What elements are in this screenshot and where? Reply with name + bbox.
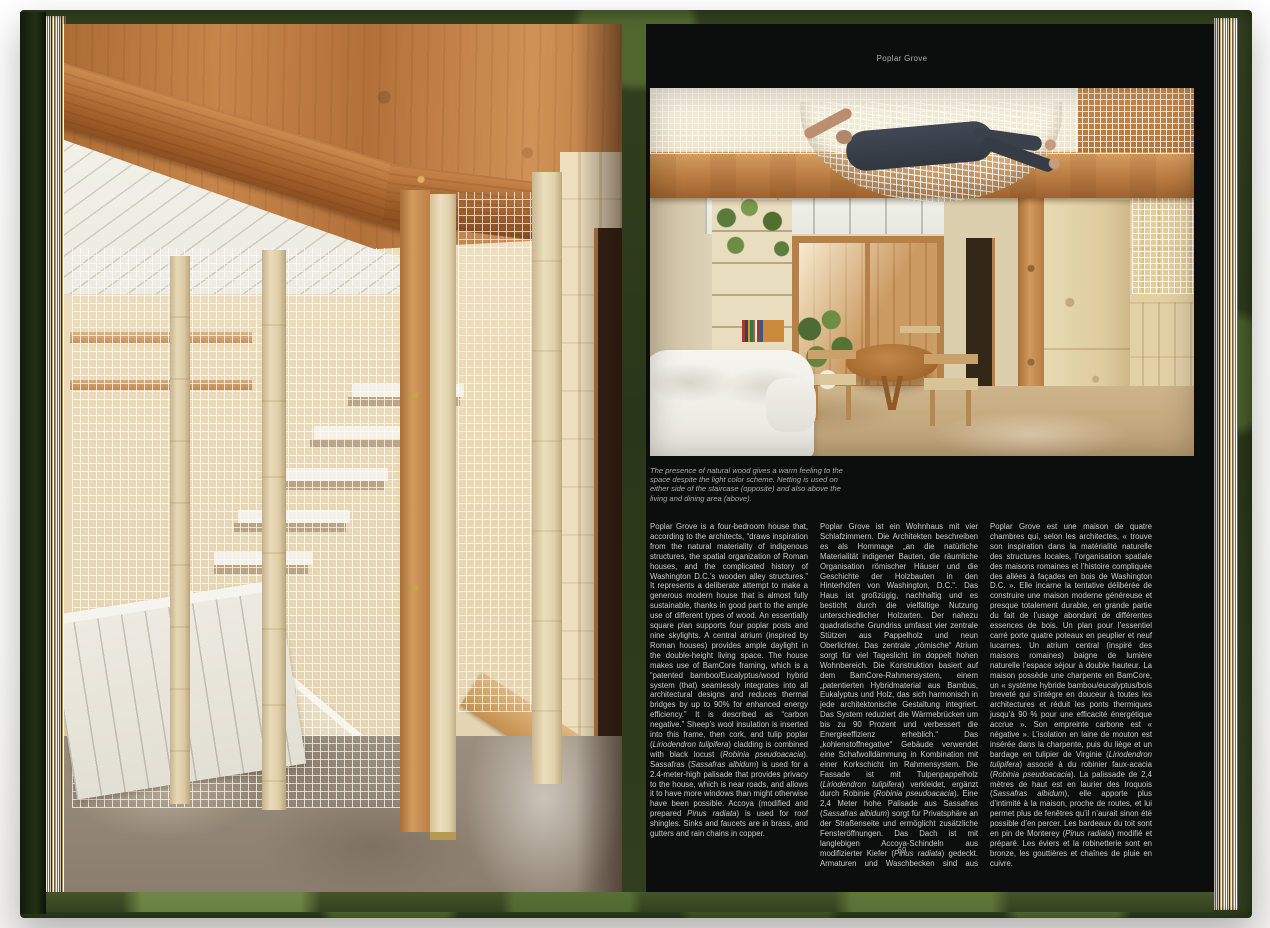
gutter-shadow: [576, 24, 622, 892]
photo-caption: The presence of natural wood gives a war…: [650, 466, 846, 503]
open-book-photo: Poplar Grove: [0, 0, 1270, 928]
photo-vignette: [650, 88, 1194, 456]
left-page-photo: [64, 24, 622, 892]
page-number: 69: [650, 846, 1154, 855]
cedar-post: [400, 190, 430, 832]
poplar-post: [430, 194, 456, 840]
book-cover-bottom-edge: [46, 892, 1214, 912]
book-cover-left-board: [20, 12, 46, 914]
poplar-post: [532, 172, 562, 784]
right-page: Poplar Grove: [646, 24, 1214, 892]
column-french: Poplar Grove est une maison de quatre ch…: [990, 522, 1152, 868]
column-german: Poplar Grove ist ein Wohnhaus mit vier S…: [820, 522, 978, 868]
page-fore-edges-right: [1214, 18, 1238, 910]
poplar-post: [170, 256, 190, 804]
text-columns: Poplar Grove is a four-bedroom house tha…: [650, 522, 1154, 868]
running-header: Poplar Grove: [650, 54, 1154, 63]
right-page-photo: [650, 88, 1194, 456]
page-fore-edges-left: [46, 16, 66, 912]
poplar-post: [262, 250, 286, 810]
column-english: Poplar Grove is a four-bedroom house tha…: [650, 522, 808, 868]
